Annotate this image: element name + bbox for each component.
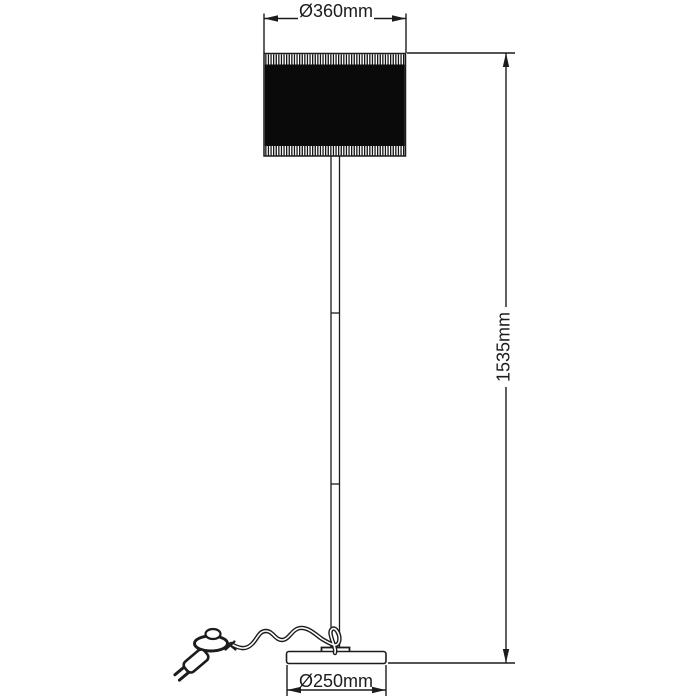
foot-switch [195,629,228,651]
dimension-height: 1535mm [388,53,515,663]
shade-diameter-label: Ø360mm [299,1,373,21]
arrowhead-bottom [503,649,509,663]
arrowhead-right [392,15,406,21]
plug-prong [175,667,184,675]
foot-switch-button [206,629,221,639]
lamp-technical-drawing: Ø360mm 1535mm Ø250mm [0,0,700,700]
total-height-label: 1535mm [494,312,514,382]
base-diameter-label: Ø250mm [299,671,373,691]
dimension-base-diameter: Ø250mm [287,665,386,696]
plug-prong [179,672,188,680]
lamp-shade [264,54,406,157]
plug-body [182,648,210,675]
shade-trim-bottom [265,146,405,156]
pole [331,156,340,652]
arrowhead-top [503,53,509,67]
shade-body [265,65,405,147]
pole-shaft [331,156,340,652]
mains-plug [173,648,210,682]
dimension-shade-diameter: Ø360mm [264,0,406,53]
arrowhead-left [264,15,278,21]
arrowhead-right [372,687,386,693]
drawing-canvas: Ø360mm 1535mm Ø250mm [0,0,700,700]
shade-trim-top [265,54,405,65]
